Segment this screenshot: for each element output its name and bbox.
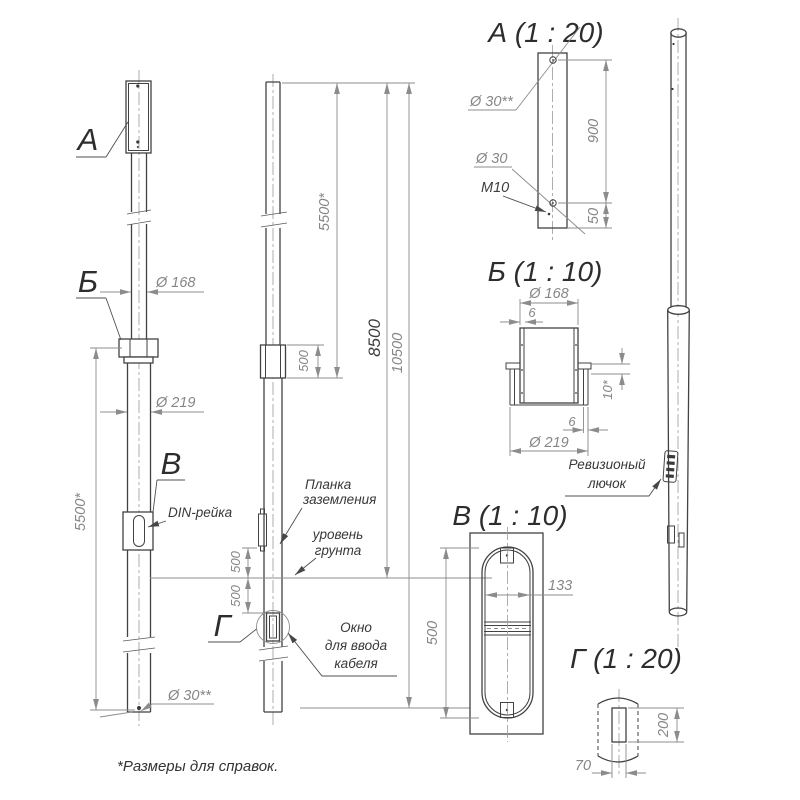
bracket-hole-top xyxy=(136,84,139,87)
drawing-sheet: Ø 168 Ø 219 5500* Ø 30** А Б В DIN-рейка… xyxy=(0,0,800,800)
bracket-hole-bottom xyxy=(136,140,139,143)
detail-v-133-arrow-right xyxy=(518,592,530,598)
callout-b-leader xyxy=(76,298,121,340)
detail-v-title: В (1 : 10) xyxy=(452,500,567,531)
iso-hatch-plate xyxy=(663,451,678,483)
detail-g-200-text: 200 xyxy=(656,713,672,738)
plank-label-line1: Планка xyxy=(305,477,352,492)
hatch-label-line1: Ревизионый xyxy=(568,457,646,472)
detail-g-title: Г (1 : 20) xyxy=(570,643,682,674)
section-break-lower xyxy=(259,646,288,661)
iso-top-cap xyxy=(671,29,686,37)
detail-b-tab-right xyxy=(578,363,591,369)
hatch-label-line2: лючок xyxy=(587,476,627,491)
detail-b: Б (1 : 10) Ø 168 6 10* 6 Ø 219 xyxy=(488,256,630,456)
detail-a-hole-top-dot xyxy=(552,59,554,61)
iso-window-right xyxy=(679,533,684,547)
callout-a-label: А xyxy=(76,122,99,157)
dim-500above-text: 500 xyxy=(228,550,243,572)
ground-label-line1: уровень xyxy=(312,527,364,542)
detail-b-upper-walls xyxy=(524,328,574,403)
detail-a-d30-text: Ø 30 xyxy=(475,151,507,167)
dim-d30-leader xyxy=(141,704,214,711)
ground-plank xyxy=(259,514,267,546)
detail-a-thread-dot xyxy=(548,213,551,216)
front-coupling xyxy=(119,339,158,357)
detail-b-d168-text: Ø 168 xyxy=(528,286,569,302)
detail-b-upper-tube xyxy=(520,328,578,403)
detail-a-900-text: 900 xyxy=(586,119,602,143)
detail-b-10-ext xyxy=(591,364,630,374)
detail-v: В (1 : 10) 133 500 xyxy=(425,500,573,742)
detail-a-title: А (1 : 20) xyxy=(486,17,603,48)
dim-500below-text: 500 xyxy=(228,584,243,606)
din-rail-label: DIN-рейка xyxy=(168,505,233,520)
detail-a-thread-leader xyxy=(503,196,546,212)
detail-v-133-arrow-left xyxy=(485,592,497,598)
dim-500x2-ext xyxy=(242,548,266,613)
detail-a: А (1 : 20) Ø 30** Ø 30 M10 900 50 xyxy=(468,17,612,242)
callout-v-label: В xyxy=(161,446,182,481)
detail-b-6top-text: 6 xyxy=(528,305,536,320)
callout-b-label: Б xyxy=(78,264,98,299)
dim-sleeve500-text: 500 xyxy=(296,349,311,371)
dim-d168-text: Ø 168 xyxy=(155,275,196,291)
window-label-line3: кабеля xyxy=(334,656,377,671)
detail-b-10-text: 10* xyxy=(600,379,615,399)
dim-d30-text: Ø 30** xyxy=(167,688,212,704)
section-break-upper xyxy=(261,212,287,227)
section-sleeve xyxy=(261,345,286,378)
detail-g-cylinder-edges xyxy=(598,704,638,756)
detail-a-d30ref-text: Ø 30** xyxy=(469,94,514,110)
detail-g: Г (1 : 20) 200 70 xyxy=(570,643,684,778)
iso-thin-tube xyxy=(671,33,686,307)
front-coupling-flange xyxy=(124,357,153,363)
plank-leader xyxy=(280,508,302,544)
detail-a-hole-bottom-dot xyxy=(552,202,554,204)
detail-g-70-text: 70 xyxy=(575,758,591,774)
front-top-bracket-inner xyxy=(129,84,149,151)
detail-b-tab-left xyxy=(506,363,520,369)
plank-label-line2: заземления xyxy=(302,492,376,507)
detail-b-6bot-text: 6 xyxy=(568,414,576,429)
window-label-line2: для ввода xyxy=(325,638,388,653)
ground-leader xyxy=(295,558,316,575)
iso-thick-tube xyxy=(668,310,690,611)
detail-v-500-text: 500 xyxy=(425,621,441,645)
detail-b-d219-text: Ø 219 xyxy=(528,435,569,451)
detail-b-title: Б (1 : 10) xyxy=(488,256,603,287)
reference-note: *Размеры для справок. xyxy=(117,758,278,775)
callout-g-label: Г xyxy=(214,608,233,643)
detail-b-lower-tube xyxy=(510,369,588,405)
dim-d30-tail xyxy=(100,712,132,717)
ground-label-line2: грунта xyxy=(315,543,362,558)
pole-drawing: Ø 168 Ø 219 5500* Ø 30** А Б В DIN-рейка… xyxy=(0,0,800,800)
iso-view: Ревизионый лючок xyxy=(565,18,689,648)
detail-a-dim-ext xyxy=(558,60,612,228)
detail-v-133-text: 133 xyxy=(548,578,572,594)
front-view: Ø 168 Ø 219 5500* Ø 30** А Б В DIN-рейка xyxy=(73,70,233,726)
front-break-upper xyxy=(127,210,151,225)
dim-10500-text: 10500 xyxy=(390,333,406,373)
dim-5500-text-mid: 5500* xyxy=(317,192,333,231)
dim-8500-text: 8500 xyxy=(365,319,384,357)
iso-coupling xyxy=(668,306,690,315)
detail-b-6bot-ext xyxy=(584,407,589,433)
detail-a-axis-bottom xyxy=(512,169,585,234)
dim-5500-text: 5500* xyxy=(73,492,89,531)
detail-a-50-text: 50 xyxy=(586,208,602,224)
window-label-line1: Окно xyxy=(340,620,372,635)
bracket-hole-dot xyxy=(137,146,139,148)
front-din-box xyxy=(123,512,153,550)
detail-a-thread-text: M10 xyxy=(481,180,509,196)
front-base-hole xyxy=(137,706,141,710)
dim-d219-text: Ø 219 xyxy=(155,395,196,411)
